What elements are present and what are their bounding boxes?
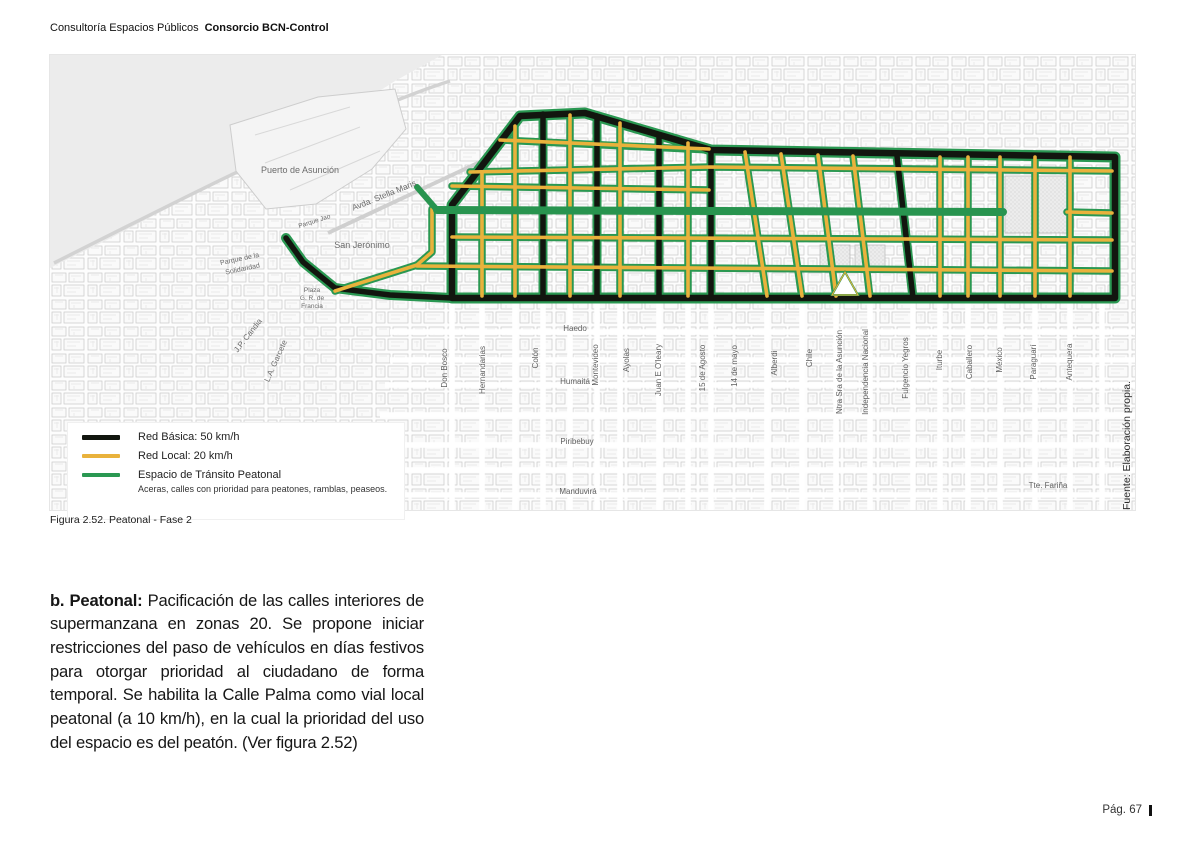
paragraph-text: Pacificación de las calles interiores de…	[50, 591, 424, 752]
map-legend: Red Básica: 50 km/hRed Local: 20 km/hEsp…	[68, 423, 404, 519]
street-label: Juan E O'leary	[654, 344, 663, 396]
header-title: Consultoría Espacios Públicos	[50, 22, 199, 34]
legend-swatch	[82, 473, 120, 477]
document-header: Consultoría Espacios PúblicosConsorcio B…	[50, 22, 329, 34]
header-title-bold: Consorcio BCN-Control	[205, 22, 329, 34]
figure-caption: Figura 2.52. Peatonal - Fase 2	[50, 514, 192, 526]
street-label: Colón	[531, 348, 540, 369]
street-label: Ntra Sra de la Asunción	[835, 330, 844, 414]
street-label: Haedo	[563, 324, 587, 333]
street-label: México	[995, 347, 1004, 373]
street-label: Tte. Fariña	[1029, 481, 1068, 490]
source-note: Fuente: Elaboración propia.	[1121, 381, 1133, 510]
paragraph-lead: b. Peatonal:	[50, 591, 142, 610]
street-label: Chile	[805, 348, 814, 367]
page-footer: Pág. 67	[1102, 804, 1152, 816]
legend-label: Red Básica: 50 km/h	[138, 431, 240, 443]
area-label: G. R. de	[300, 295, 325, 302]
street-label: Ayolas	[622, 348, 631, 372]
street-label: Manduvirá	[559, 487, 597, 496]
legend-label: Red Local: 20 km/h	[138, 450, 233, 462]
legend-label: Espacio de Tránsito Peatonal	[138, 469, 281, 481]
legend-sublabel: Aceras, calles con prioridad para peaton…	[138, 484, 404, 494]
street-label: Independencia Nacional	[861, 329, 870, 415]
street-label: Paraguarí	[1029, 344, 1038, 380]
area-label: Francia	[301, 303, 323, 310]
area-label: Puerto de Asunción	[261, 165, 339, 175]
street-label: Don Bosco	[440, 348, 449, 388]
street-label: 14 de mayo	[730, 345, 739, 387]
street-label: Fulgencio Yegros	[901, 337, 910, 398]
legend-swatch	[82, 435, 120, 440]
body-paragraph: b. Peatonal: Pacificación de las calles …	[50, 589, 424, 755]
street-label: Piribebuy	[560, 437, 593, 446]
street-label: Caballero	[965, 344, 974, 379]
map-figure: Don BoscoHernandariasColónMontevideoAyol…	[50, 55, 1135, 510]
document-page: Consultoría Espacios PúblicosConsorcio B…	[0, 0, 1200, 848]
legend-swatch	[82, 454, 120, 458]
page-number: Pág. 67	[1102, 804, 1142, 816]
street-label: Humaitá	[560, 377, 590, 386]
street-label: Montevideo	[591, 344, 600, 386]
legend-item: Red Básica: 50 km/h	[82, 431, 404, 443]
street-label: Iturbe	[935, 349, 944, 370]
street-label: Alberdi	[770, 350, 779, 375]
street-label: 15 de Agosto	[698, 344, 707, 391]
legend-item: Red Local: 20 km/h	[82, 450, 404, 462]
street-label: Hernandarias	[478, 346, 487, 394]
legend-item: Espacio de Tránsito Peatonal	[82, 469, 404, 481]
street-label: Antequera	[1065, 343, 1074, 380]
area-label: Plaza	[304, 287, 321, 294]
area-label: San Jerónimo	[334, 240, 390, 250]
footer-bar	[1149, 805, 1152, 816]
